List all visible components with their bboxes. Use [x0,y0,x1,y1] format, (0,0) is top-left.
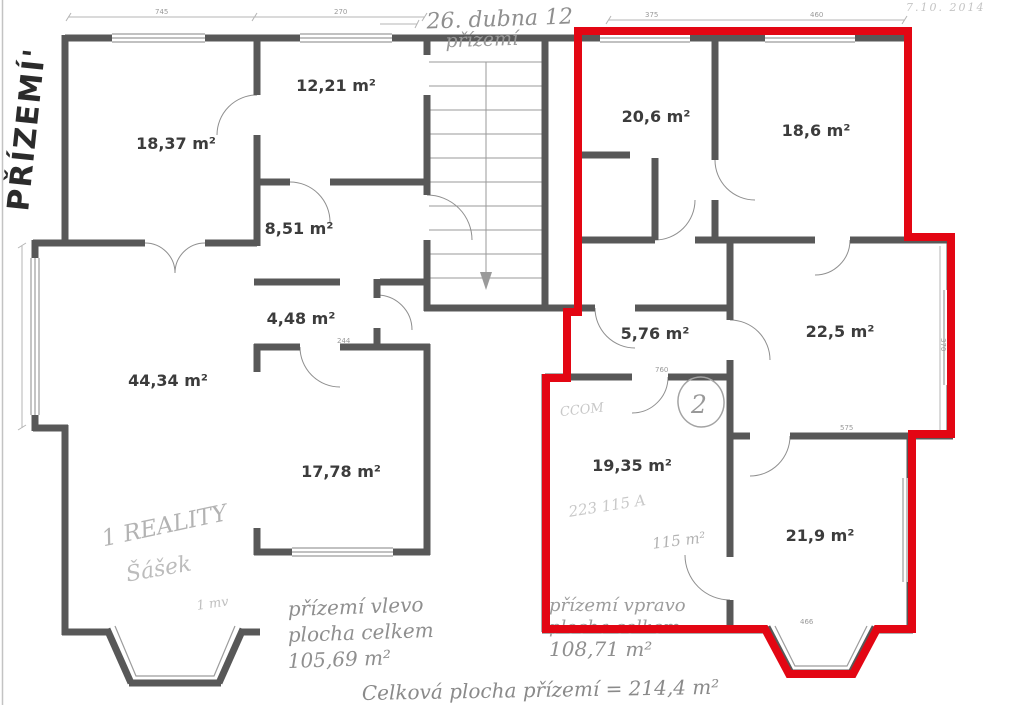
room-label-18-37: 18,37 m² [136,134,216,153]
code-note: 223 115 A [566,491,647,521]
dim-375: 375 [645,11,658,19]
left-summary-line1: přízemí vlevo [287,592,423,621]
right-summary-line1: přízemí vpravo [549,595,686,616]
circled-number: 2 [690,390,707,419]
dim-466: 466 [800,618,814,626]
red-outline [546,31,951,674]
handwritten-annotations: 26. dubna 12 přízemí 7.10. 2014 PŘÍZEMÍ'… [0,1,985,705]
dim-575: 575 [840,424,853,432]
dim-760: 760 [655,366,668,374]
floorplan-svg: 745 270 375 460 244 760 575 466 370 [0,0,1024,705]
room-label-4-48: 4,48 m² [267,309,336,328]
top-note-line2: přízemí [445,28,521,53]
floorplan-scan: 745 270 375 460 244 760 575 466 370 [0,0,1024,705]
realty-note-line1: 1 REALITY [99,500,232,553]
mv-note: 1 mv [196,594,230,613]
realty-note-line2: Šášek [124,550,194,588]
room-label-44-34: 44,34 m² [128,371,208,390]
room-label-5-76: 5,76 m² [621,324,690,343]
dim-745: 745 [155,8,168,16]
room-label-21-9: 21,9 m² [786,526,855,545]
area-note: 115 m² [651,528,706,552]
scan-date: 7.10. 2014 [906,1,985,14]
room-label-18-6: 18,6 m² [782,121,851,140]
room-label-17-78: 17,78 m² [301,462,381,481]
dim-270: 270 [334,8,347,16]
ccom-note: CCOM [559,400,605,420]
floor-title-vertical: PŘÍZEMÍ' [0,45,53,213]
left-summary-line2: plocha celkem [287,618,434,647]
room-label-19-35: 19,35 m² [592,456,672,475]
total-area-note: Celková plocha přízemí = 214,4 m² [362,675,720,705]
stairs-direction-arrow [480,272,492,290]
room-label-20-6: 20,6 m² [622,107,691,126]
right-summary-line3: 108,71 m² [549,637,652,661]
dimension-lines [18,13,907,430]
room-label-8-51: 8,51 m² [265,219,334,238]
room-label-22-5: 22,5 m² [806,322,875,341]
room-label-12-21: 12,21 m² [296,76,376,95]
dim-460: 460 [810,11,823,19]
left-summary-line3: 105,69 m² [287,645,391,673]
door-swings [145,95,850,600]
staircase [429,62,543,290]
